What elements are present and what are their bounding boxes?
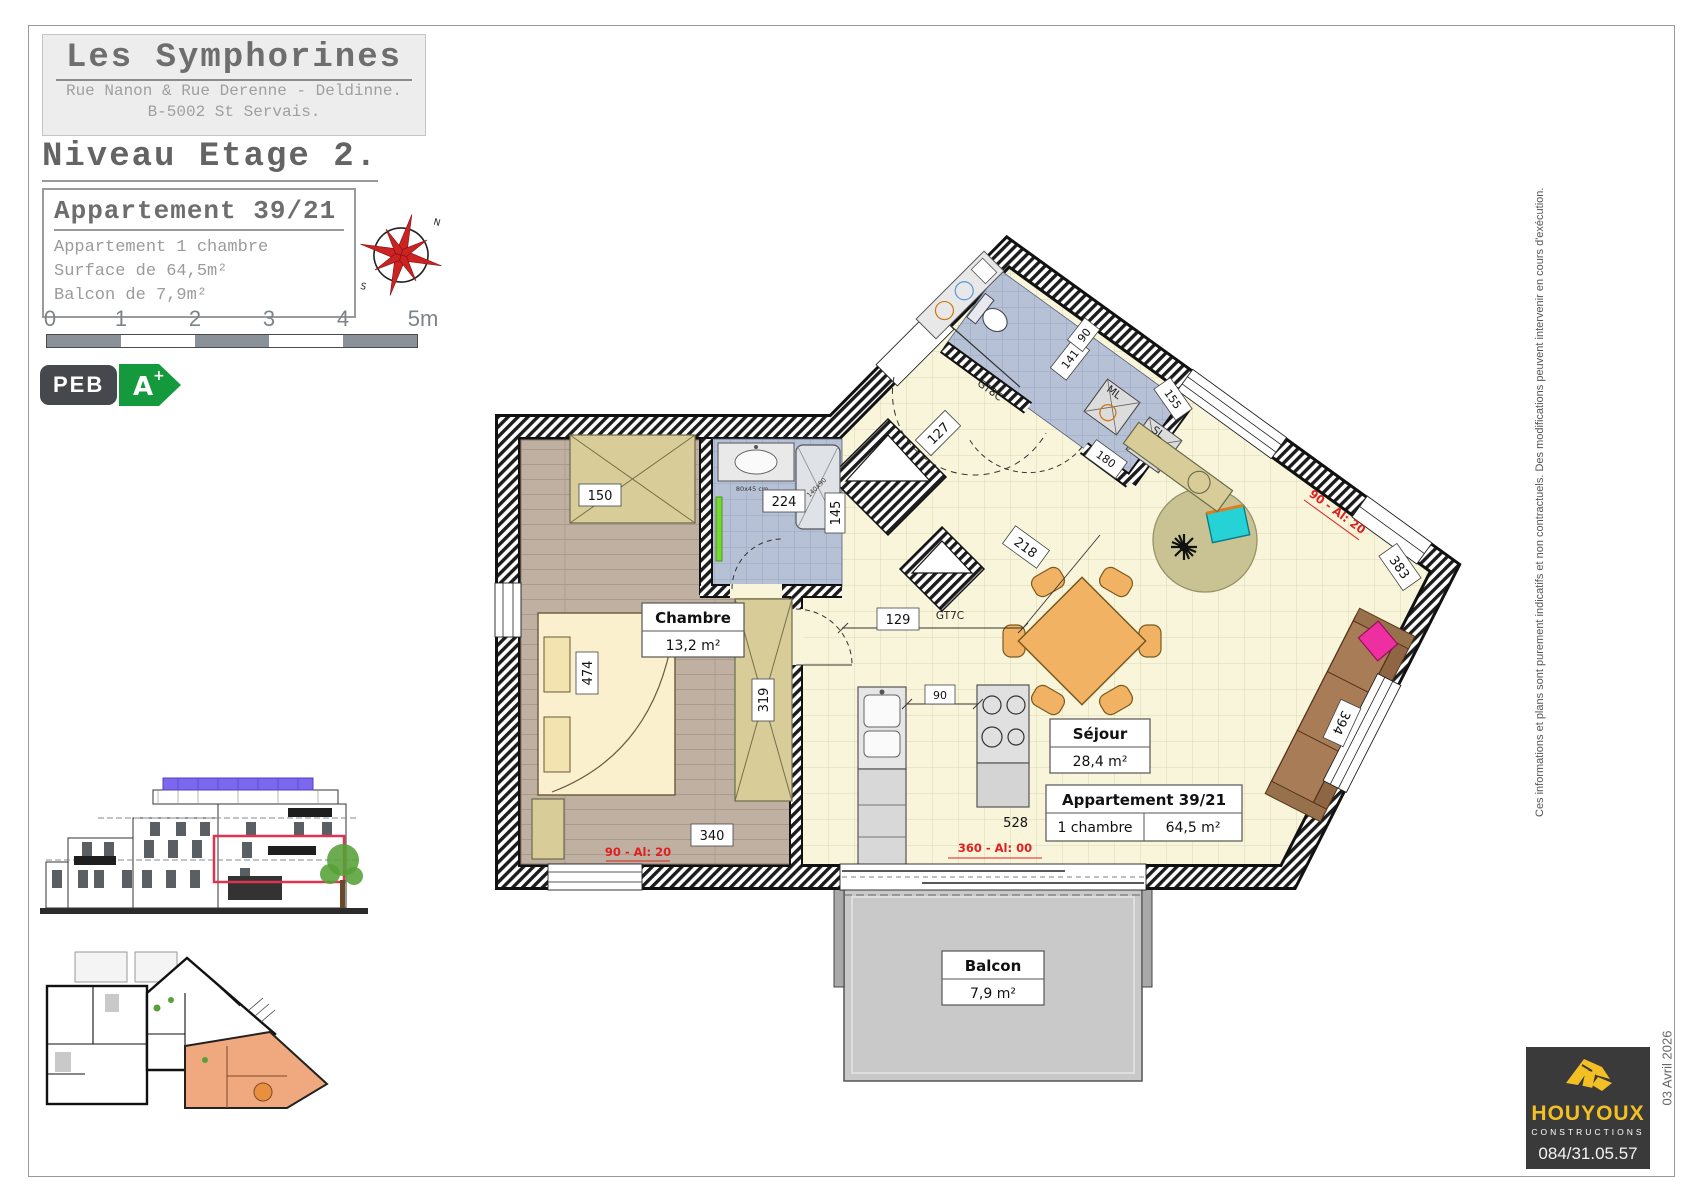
svg-text:129: 129 [886,613,911,628]
svg-text:360 - Al: 00: 360 - Al: 00 [958,841,1032,855]
svg-text:Chambre: Chambre [655,609,731,627]
project-title: Les Symphorines [56,35,412,81]
scale-bar-segments [46,334,418,348]
peb-badge: PEB A + [40,363,183,407]
project-address-line2: B-5002 St Servais. [43,102,425,123]
rug [1153,488,1257,592]
compass-north-label: N [432,217,441,228]
builder-logo-icon [1558,1053,1618,1095]
compass-rose: N S [356,210,446,300]
peb-grade: A [133,372,153,402]
apartment-card-title: Appartement 39/21 [54,196,344,231]
cooktop-unit [977,685,1029,807]
svg-text:474: 474 [581,661,596,686]
room-label-chambre: Chambre 13,2 m² [642,603,744,657]
apartment-card: Appartement 39/21 Appartement 1 chambre … [42,188,356,318]
peb-grade-plus: + [153,368,165,384]
svg-text:Séjour: Séjour [1073,725,1128,743]
scale-tick-0: 0 [44,306,56,332]
svg-text:28,4 m²: 28,4 m² [1073,754,1128,770]
builder-name: HOUYOUX [1526,1102,1650,1126]
scale-tick-1: 1 [115,306,127,332]
towel-radiator [716,497,722,561]
svg-text:Appartement 39/21: Appartement 39/21 [1062,791,1226,809]
compass-south-label: S [359,282,367,293]
svg-text:90 - Al: 20: 90 - Al: 20 [605,845,671,859]
apartment-card-line3: Balcon de 7,9m² [54,284,344,308]
svg-text:64,5 m²: 64,5 m² [1166,820,1221,836]
elevation-thumbnail [38,742,370,922]
svg-text:528: 528 [1003,816,1028,831]
svg-text:145: 145 [829,501,844,526]
apartment-card-line2: Surface de 64,5m² [54,260,344,284]
svg-text:1 chambre: 1 chambre [1057,820,1132,836]
kitchen-sink-unit [858,687,906,865]
scale-tick-2: 2 [189,306,201,332]
plan-date: 03 Avril 2026 [1660,966,1675,1106]
scale-bar: 0 1 2 3 4 5m [46,306,426,352]
svg-text:GT7C: GT7C [936,610,964,622]
level-plan-thumbnail [35,948,340,1110]
svg-text:319: 319 [757,688,772,713]
level-title: Niveau Etage 2. [42,138,378,182]
peb-label: PEB [40,365,117,405]
project-header-card: Les Symphorines Rue Nanon & Rue Derenne … [42,34,426,136]
svg-text:13,2 m²: 13,2 m² [666,638,721,654]
scale-tick-3: 3 [263,306,275,332]
level-title-wrap: Niveau Etage 2. [42,138,378,182]
svg-text:340: 340 [700,829,725,844]
room-label-sejour: Séjour 28,4 m² [1050,719,1150,773]
room-label-balcon: Balcon 7,9 m² [942,951,1044,1005]
scale-tick-5: 5m [408,306,439,332]
svg-text:Balcon: Balcon [965,957,1022,975]
project-address-line1: Rue Nanon & Rue Derenne - Deldinne. [43,81,425,102]
disclaimer: Ces informations et plans sont purement … [1534,217,1546,817]
builder-subtitle: CONSTRUCTIONS [1526,1127,1650,1137]
apartment-card-line1: Appartement 1 chambre [54,236,344,260]
svg-text:90: 90 [933,689,947,702]
scale-tick-4: 4 [337,306,349,332]
svg-text:7,9 m²: 7,9 m² [970,986,1016,1002]
bedroom-bench [532,799,564,859]
peb-grade-arrow: A + [117,363,183,407]
svg-text:224: 224 [772,495,797,510]
wardrobe-150 [570,435,695,523]
floor-plan: 80x45 cm 140x90 [490,195,1480,1095]
builder-logo: HOUYOUX CONSTRUCTIONS 084/31.05.57 [1526,1047,1650,1169]
builder-phone: 084/31.05.57 [1526,1144,1650,1164]
svg-text:150: 150 [588,489,613,504]
apartment-summary-box: Appartement 39/21 1 chambre 64,5 m² [1046,785,1242,841]
